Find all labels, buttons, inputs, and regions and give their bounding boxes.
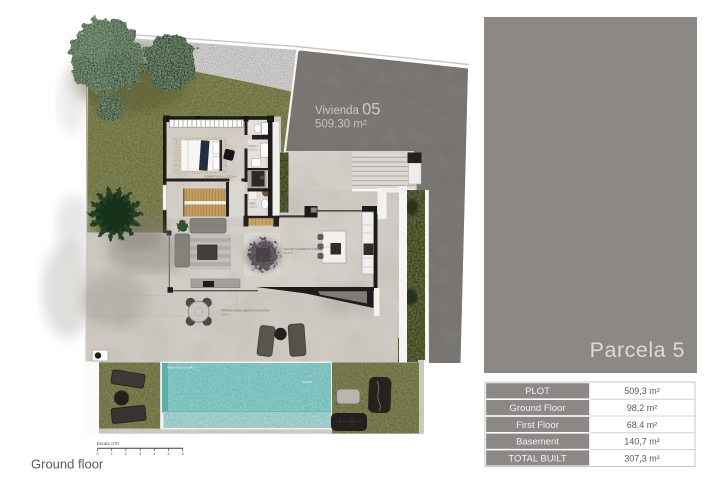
svg-text:509.30 m²: 509.30 m² [315,119,367,131]
svg-text:TERRAZA DESCUBIERTA SOLARIUM: TERRAZA DESCUBIERTA SOLARIUM [221,309,270,313]
svg-text:PLOT: PLOT [525,386,550,397]
svg-text:52,8 m²: 52,8 m² [284,251,293,255]
svg-text:5,18 m²: 5,18 m² [249,148,257,151]
svg-text:Escala 1/70: Escala 1/70 [97,441,120,446]
svg-text:TOTAL BUILT: TOTAL BUILT [508,453,566,464]
svg-text:5: 5 [168,452,170,456]
svg-text:1,95 m²: 1,95 m² [249,206,257,209]
svg-text:52,9 m²: 52,9 m² [221,313,230,316]
svg-text:Ground Floor: Ground Floor [510,403,566,414]
svg-text:SALON COMEDOR COCINA: SALON COMEDOR COCINA [284,247,323,251]
svg-text:0: 0 [97,452,99,456]
svg-text:68,4 m²: 68,4 m² [627,420,658,430]
svg-text:509,3 m²: 509,3 m² [624,386,660,396]
svg-text:First Floor: First Floor [516,420,559,431]
svg-text:2: 2 [125,452,127,456]
svg-text:4: 4 [153,452,155,456]
svg-text:140,7 m²: 140,7 m² [624,437,660,447]
svg-text:98,2 m²: 98,2 m² [627,403,658,413]
svg-text:Ground floor: Ground floor [31,457,104,472]
svg-text:Basement: Basement [516,437,559,448]
svg-text:Piscina 43,9 x 3,04 m: Piscina 43,9 x 3,04 m [167,366,196,370]
svg-text:1: 1 [111,452,113,456]
svg-text:3: 3 [139,452,141,456]
svg-text:6: 6 [182,452,184,456]
svg-text:307,3 m²: 307,3 m² [624,453,660,463]
svg-text:DORMITORIO 1 12,9 m²: DORMITORIO 1 12,9 m² [204,175,237,179]
svg-text:Parcela 5: Parcela 5 [590,338,685,362]
